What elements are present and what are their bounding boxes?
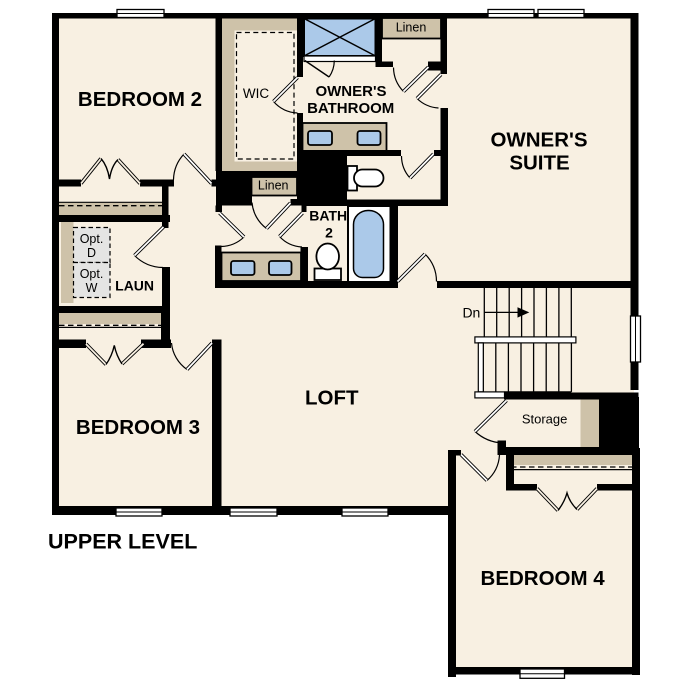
svg-text:BEDROOM 2: BEDROOM 2 xyxy=(78,88,202,111)
svg-text:Linen: Linen xyxy=(258,179,289,193)
svg-text:UPPER LEVEL: UPPER LEVEL xyxy=(48,530,197,554)
svg-text:SUITE: SUITE xyxy=(509,152,569,175)
svg-text:2: 2 xyxy=(325,225,333,241)
svg-text:BATHROOM: BATHROOM xyxy=(307,100,394,117)
svg-text:BEDROOM 3: BEDROOM 3 xyxy=(76,416,200,439)
svg-text:BATH: BATH xyxy=(309,208,347,224)
svg-text:LOFT: LOFT xyxy=(305,387,359,410)
svg-text:OWNER'S: OWNER'S xyxy=(315,83,386,100)
svg-text:BEDROOM 4: BEDROOM 4 xyxy=(481,567,606,590)
svg-text:Dn: Dn xyxy=(462,304,480,320)
svg-text:Opt.: Opt. xyxy=(80,232,104,246)
svg-text:OWNER'S: OWNER'S xyxy=(490,129,587,152)
svg-text:D: D xyxy=(87,246,96,260)
svg-text:LAUN: LAUN xyxy=(115,278,154,294)
svg-text:WIC: WIC xyxy=(243,86,269,101)
svg-text:W: W xyxy=(86,281,98,295)
svg-text:Linen: Linen xyxy=(396,21,427,35)
svg-text:Storage: Storage xyxy=(522,412,568,427)
svg-text:Opt.: Opt. xyxy=(80,267,104,281)
